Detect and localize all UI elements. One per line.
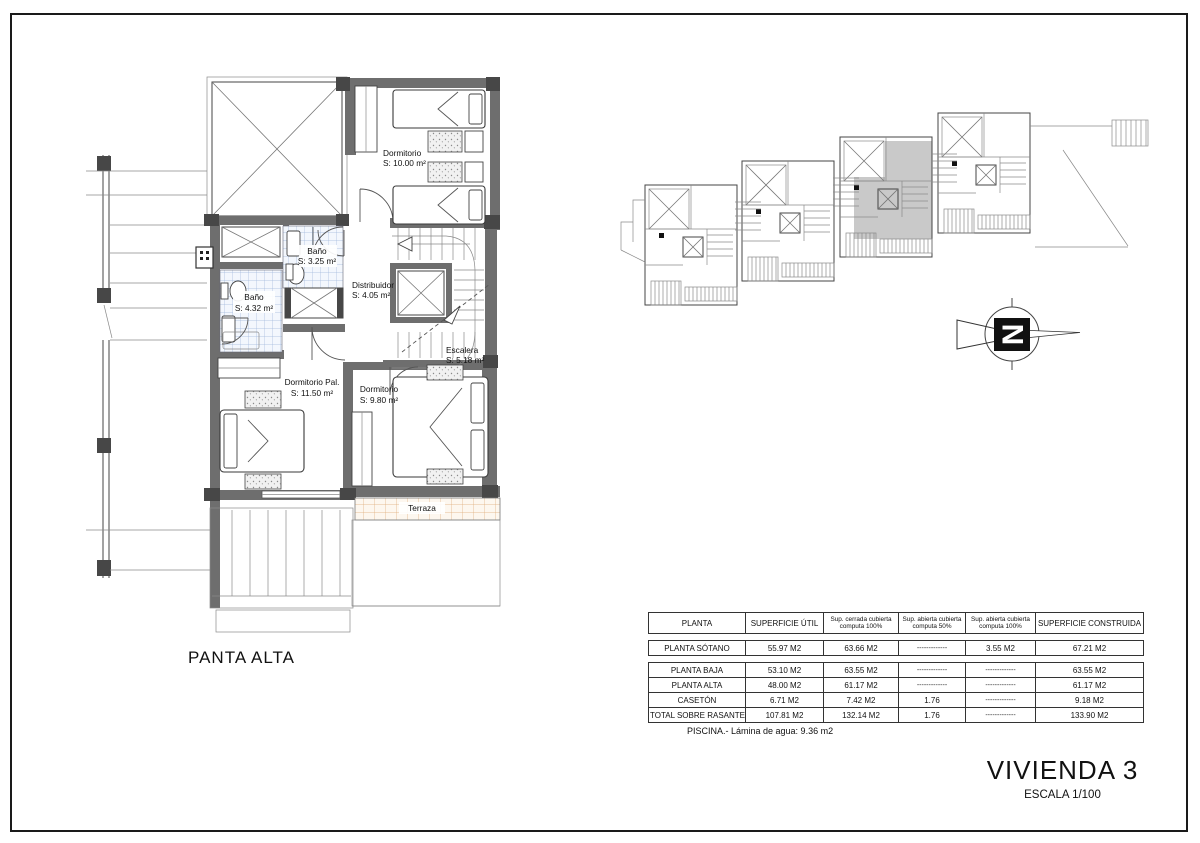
cell: 7.42 M2	[824, 693, 899, 708]
cell: 55.97 M2	[746, 641, 824, 656]
cell: 132.14 M2	[824, 708, 899, 723]
cell: 61.17 M2	[824, 678, 899, 693]
cell: 133.90 M2	[1036, 708, 1144, 723]
table-row-total: TOTAL SOBRE RASANTE 107.81 M2 132.14 M2 …	[649, 708, 1144, 723]
elevator	[390, 263, 452, 323]
lower-level-outline	[210, 508, 500, 632]
cell: 9.18 M2	[1036, 693, 1144, 708]
cell: PLANTA ALTA	[649, 678, 746, 693]
cell: PLANTA SÓTANO	[649, 641, 746, 656]
table-row: PLANTA SÓTANO 55.97 M2 63.66 M2 --------…	[649, 641, 1144, 656]
room-label-terraza: Terraza	[408, 503, 436, 513]
cell: 63.66 M2	[824, 641, 899, 656]
cell: -------------	[966, 708, 1036, 723]
north-letter: N	[996, 324, 1029, 346]
cell: 1.76	[899, 693, 966, 708]
header-sup-abierta-100: Sup. abierta cubierta computa 100%	[966, 613, 1036, 634]
header-sup-cerrada: Sup. cerrada cubierta computa 100%	[824, 613, 899, 634]
cell: 107.81 M2	[746, 708, 824, 723]
cell: 53.10 M2	[746, 663, 824, 678]
cell: 63.55 M2	[1036, 663, 1144, 678]
cell: 63.55 M2	[824, 663, 899, 678]
cell: 3.55 M2	[966, 641, 1036, 656]
cell: -------------	[899, 678, 966, 693]
key-plan	[621, 113, 1148, 305]
cell: 6.71 M2	[746, 693, 824, 708]
room-label-bano-small-area: S: 3.25 m²	[298, 256, 337, 266]
room-label-escalera-name: Escalera	[446, 345, 479, 355]
table-row: CASETÓN 6.71 M2 7.42 M2 1.76 -----------…	[649, 693, 1144, 708]
cell: -------------	[966, 693, 1036, 708]
room-label-bano-large-area: S: 4.32 m²	[235, 303, 274, 313]
room-label-dormitorio-top-name: Dormitorio	[383, 148, 422, 158]
cell: 61.17 M2	[1036, 678, 1144, 693]
cell: 67.21 M2	[1036, 641, 1144, 656]
room-label-dorm-right-name: Dormitorio	[360, 384, 399, 394]
main-floor-plan: Dormitorio S: 10.00 m² Baño S: 3.25 m² B…	[86, 77, 500, 632]
cell: 48.00 M2	[746, 678, 824, 693]
left-fence	[86, 155, 210, 578]
room-label-bano-large-name: Baño	[244, 292, 264, 302]
cell: -------------	[966, 678, 1036, 693]
table-row: PLANTA ALTA 48.00 M2 61.17 M2 ----------…	[649, 678, 1144, 693]
sheet-title: VIVIENDA 3	[935, 755, 1190, 786]
room-label-distribuidor-name: Distribuidor	[352, 280, 394, 290]
cell: -------------	[899, 641, 966, 656]
table-row: PLANTA BAJA 53.10 M2 63.55 M2 ----------…	[649, 663, 1144, 678]
header-superficie-util: SUPERFICIE ÚTIL	[746, 613, 824, 634]
cell: CASETÓN	[649, 693, 746, 708]
pool-note: PISCINA.- Lámina de agua: 9.36 m2	[687, 726, 833, 736]
bathrooms	[220, 226, 343, 352]
cell: 1.76	[899, 708, 966, 723]
table-header-row: PLANTA SUPERFICIE ÚTIL Sup. cerrada cubi…	[649, 613, 1144, 634]
room-label-dorm-pal-area: S: 11.50 m²	[291, 388, 334, 398]
floor-plan-title: PANTA ALTA	[188, 648, 295, 668]
room-label-dorm-pal-name: Dormitorio Pal.	[285, 377, 340, 387]
room-label-escalera-area: S: 5.18 m²	[446, 355, 485, 365]
cell: PLANTA BAJA	[649, 663, 746, 678]
sheet-scale: ESCALA 1/100	[935, 789, 1190, 801]
north-arrow: N	[957, 298, 1080, 370]
void-roof	[207, 77, 347, 220]
header-superficie-construida: SUPERFICIE CONSTRUIDA	[1036, 613, 1144, 634]
drawing-sheet: { "drawing": { "floor_label": "PANTA ALT…	[0, 0, 1200, 843]
room-label-dorm-right-area: S: 9.80 m²	[360, 395, 399, 405]
cell: TOTAL SOBRE RASANTE	[649, 708, 746, 723]
header-sup-abierta-50: Sup. abierta cubierta computa 50%	[899, 613, 966, 634]
room-label-distribuidor-area: S: 4.05 m²	[352, 290, 391, 300]
title-block: VIVIENDA 3 ESCALA 1/100	[935, 755, 1190, 801]
header-planta: PLANTA	[649, 613, 746, 634]
cell: -------------	[899, 663, 966, 678]
area-summary-table: PLANTA SUPERFICIE ÚTIL Sup. cerrada cubi…	[648, 612, 1144, 723]
room-label-bano-small-name: Baño	[307, 246, 327, 256]
cell: -------------	[966, 663, 1036, 678]
room-label-dormitorio-top-area: S: 10.00 m²	[383, 158, 426, 168]
